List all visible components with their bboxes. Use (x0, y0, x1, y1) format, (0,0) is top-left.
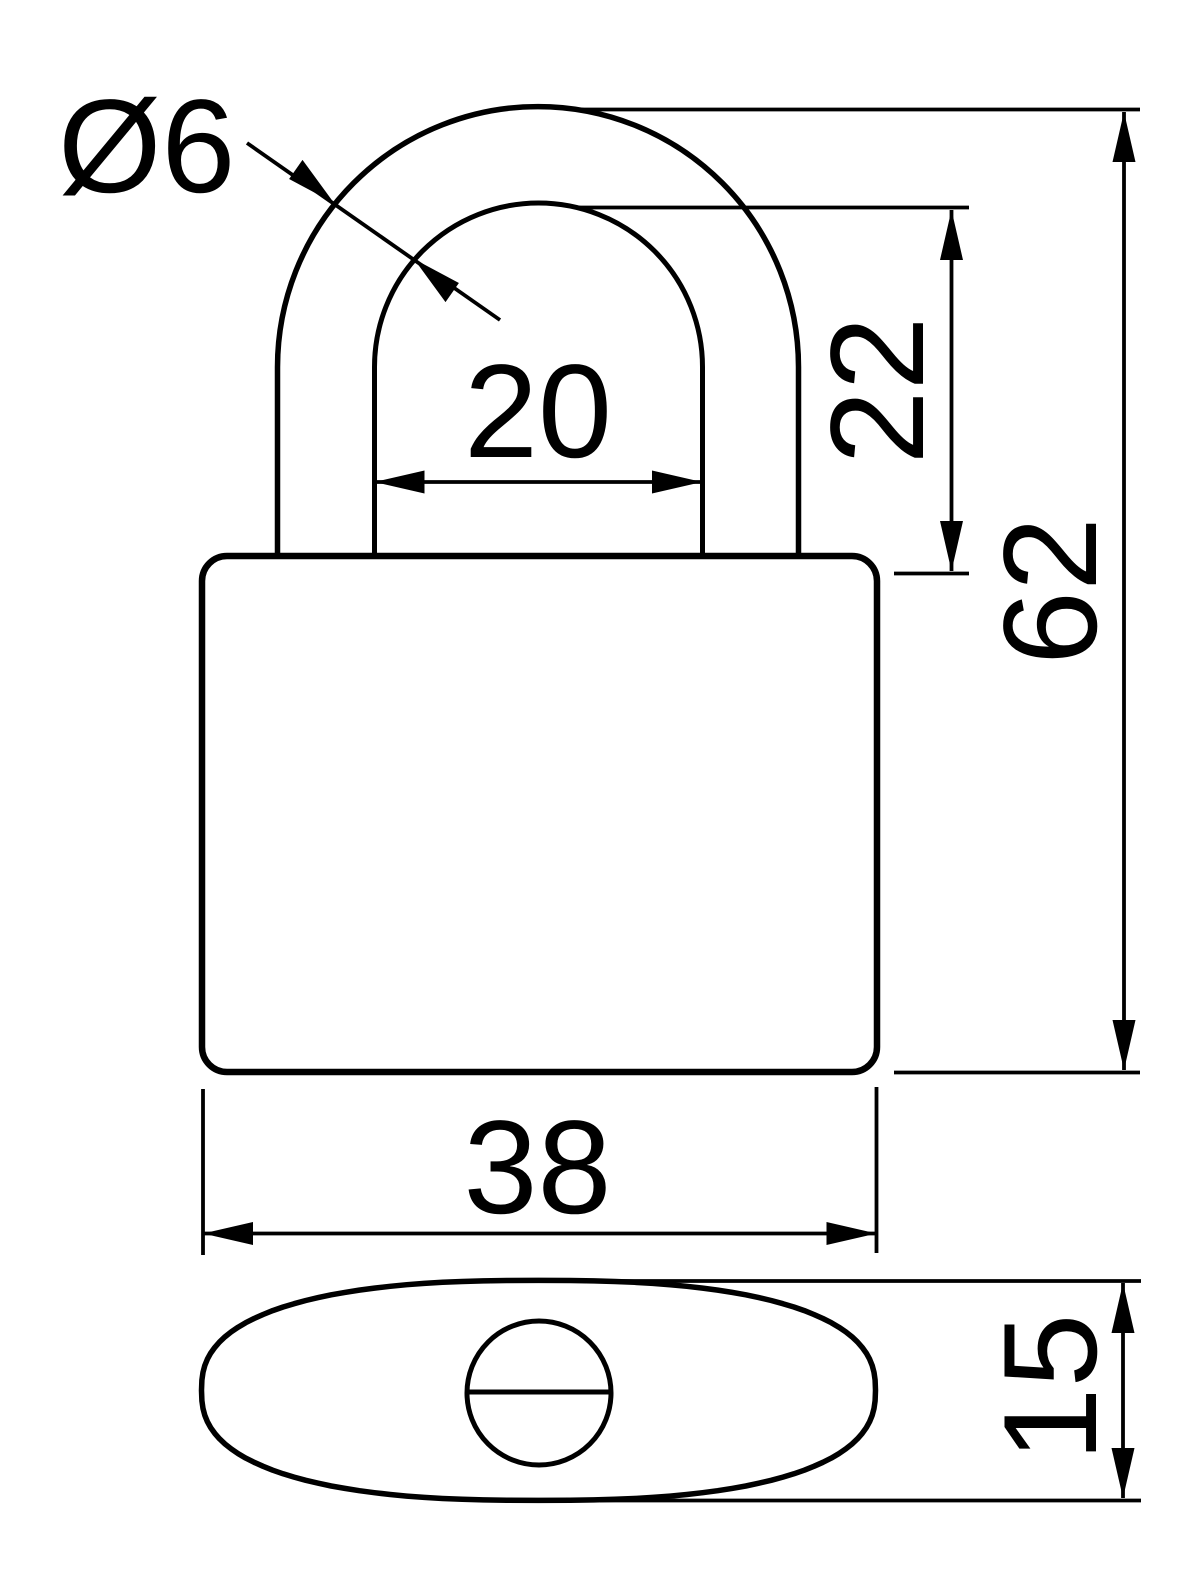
svg-text:15: 15 (977, 1314, 1125, 1462)
svg-text:22: 22 (804, 317, 952, 465)
svg-text:38: 38 (464, 1094, 612, 1242)
svg-text:Ø6: Ø6 (58, 73, 235, 221)
svg-text:20: 20 (464, 338, 612, 486)
svg-text:62: 62 (977, 517, 1125, 665)
